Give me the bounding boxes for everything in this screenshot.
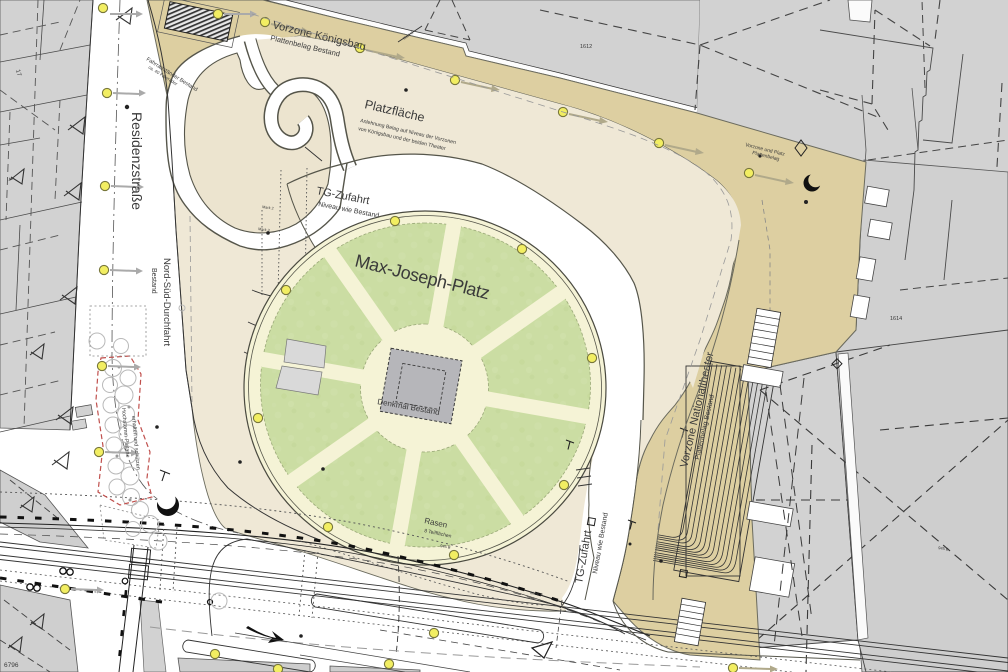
svg-text:1614: 1614 bbox=[890, 316, 902, 322]
svg-text:Bestand: Bestand bbox=[150, 268, 157, 294]
svg-text:6796: 6796 bbox=[4, 662, 19, 669]
svg-text:Residenzstraße: Residenzstraße bbox=[129, 112, 145, 210]
svg-text:Nord-Süd-Durchfahrt: Nord-Süd-Durchfahrt bbox=[161, 258, 172, 347]
svg-text:1612: 1612 bbox=[580, 44, 592, 50]
